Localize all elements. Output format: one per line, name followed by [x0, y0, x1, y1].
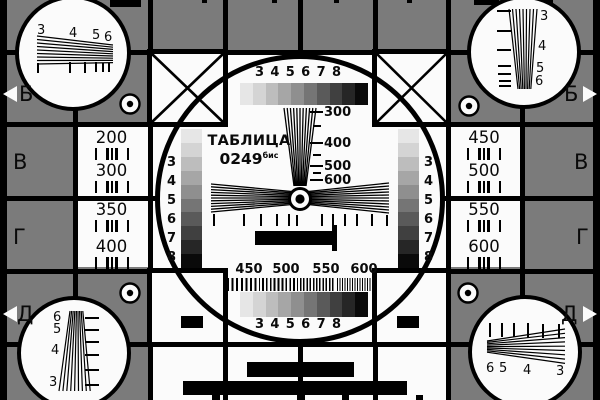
row-marker-d-right: Д	[561, 303, 577, 325]
bl-wedge-label: 3	[49, 376, 57, 390]
row-marker-d-left: Д	[17, 303, 33, 325]
arrow-right-icon	[583, 306, 597, 322]
tl-wedge-label: 3	[37, 24, 45, 38]
target-icon	[460, 97, 479, 116]
arrow-left-icon	[3, 86, 17, 102]
row-marker-g-left: Г	[13, 226, 26, 248]
target-icon	[121, 95, 140, 114]
target-icon	[121, 284, 140, 303]
bl-wedge-label: 4	[51, 344, 59, 358]
tv-test-card: 345678 345678 300 400 500 600 ТАБЛИЦА 02…	[0, 0, 600, 400]
row-marker-b-right: Б	[564, 83, 578, 105]
row-marker-v-right: В	[574, 151, 588, 173]
row-marker-b-left: Б	[19, 83, 33, 105]
br-wedge-label: 4	[523, 364, 531, 378]
row-marker-v-left: В	[13, 151, 27, 173]
br-wedge-label: 6	[486, 362, 494, 376]
arrow-left-icon	[3, 306, 17, 322]
tr-wedge-label: 6	[535, 75, 543, 89]
row-marker-g-right: Г	[576, 226, 589, 248]
tl-wedge-label: 6	[104, 31, 112, 45]
tl-wedge-label: 5	[92, 29, 100, 43]
target-icon	[459, 284, 478, 303]
br-wedge-label: 5	[499, 362, 507, 376]
tr-wedge-label: 3	[540, 10, 548, 24]
arrow-right-icon	[583, 86, 597, 102]
bl-wedge-label: 5	[53, 323, 61, 337]
corner-wedges-graphic	[0, 0, 600, 400]
tl-wedge-label: 4	[69, 27, 77, 41]
tr-wedge-label: 4	[538, 40, 546, 54]
br-wedge-label: 3	[556, 365, 564, 379]
